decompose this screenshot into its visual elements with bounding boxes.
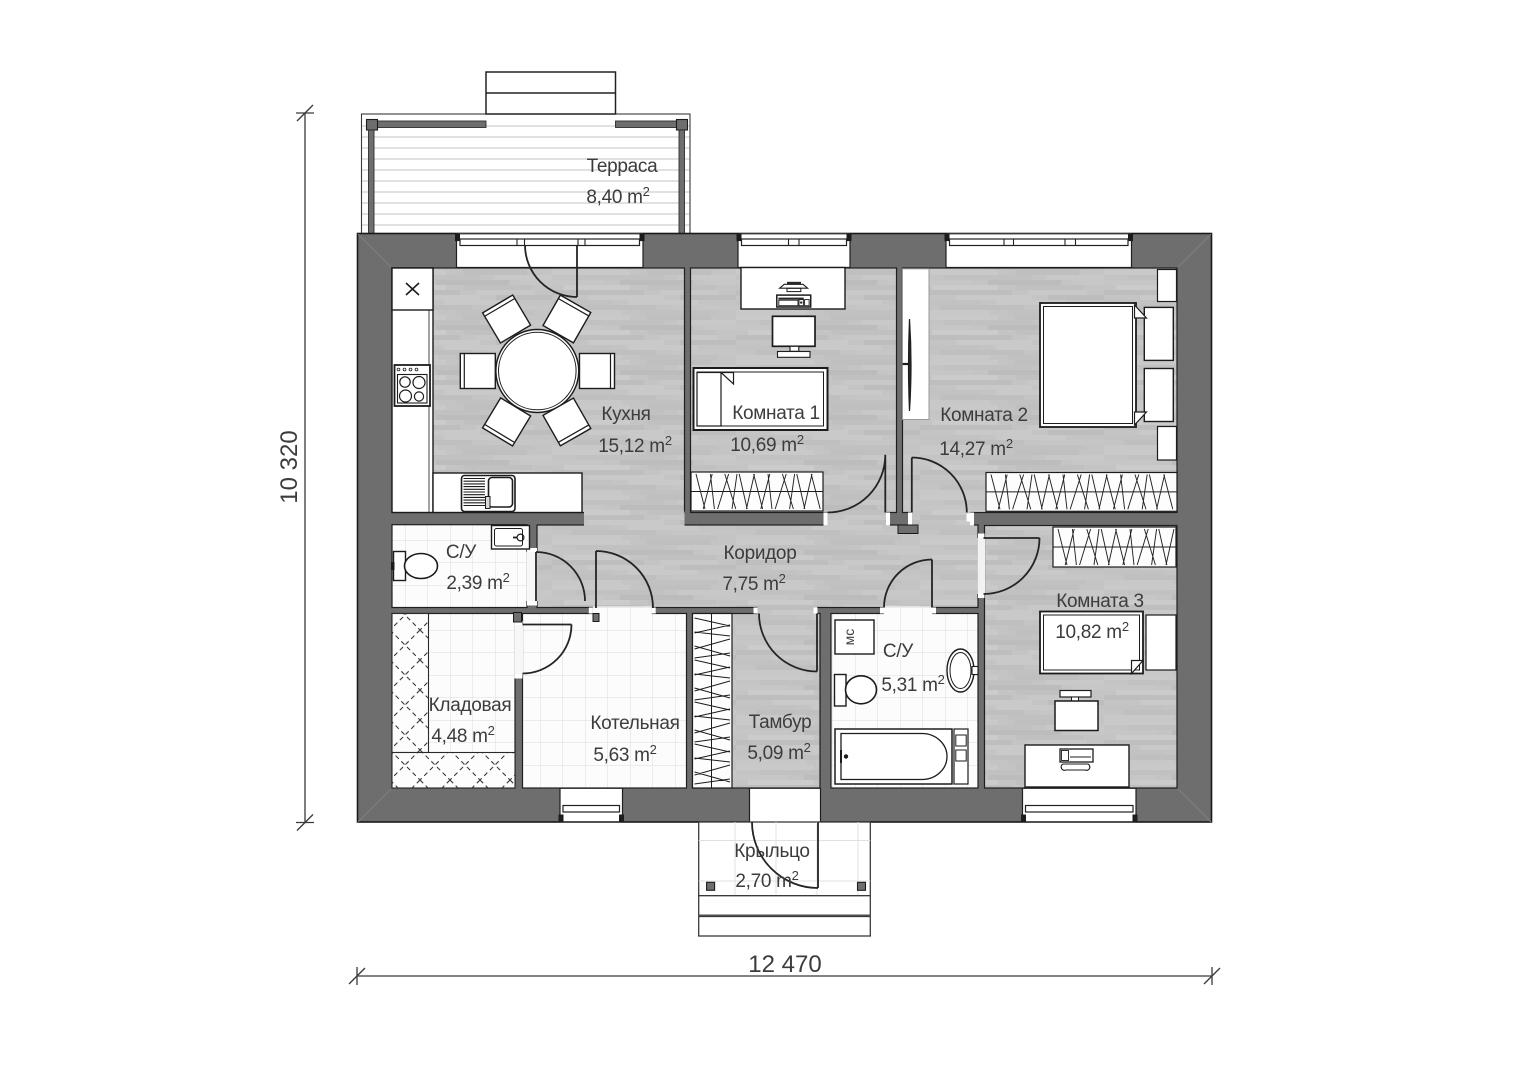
svg-text:Комната 1: Комната 1 bbox=[732, 403, 820, 424]
svg-text:Коридор: Коридор bbox=[724, 543, 797, 564]
svg-text:Тамбур: Тамбур bbox=[749, 712, 812, 733]
svg-text:2,39 m2: 2,39 m2 bbox=[446, 570, 509, 594]
svg-text:5,31 m2: 5,31 m2 bbox=[881, 672, 944, 696]
svg-text:14,27 m2: 14,27 m2 bbox=[939, 436, 1013, 460]
svg-text:Кухня: Кухня bbox=[601, 404, 650, 425]
svg-text:5,63 m2: 5,63 m2 bbox=[593, 742, 656, 766]
svg-text:Кладовая: Кладовая bbox=[429, 695, 512, 716]
svg-text:Комната 2: Комната 2 bbox=[940, 405, 1028, 426]
svg-text:5,09 m2: 5,09 m2 bbox=[747, 740, 810, 764]
svg-text:Терраса: Терраса bbox=[587, 156, 659, 177]
svg-text:10 320: 10 320 bbox=[276, 430, 303, 503]
svg-text:С/У: С/У bbox=[446, 542, 477, 563]
svg-text:Комната 3: Комната 3 bbox=[1056, 591, 1144, 612]
svg-text:Котельная: Котельная bbox=[590, 713, 679, 734]
svg-text:Крыльцо: Крыльцо bbox=[734, 841, 809, 862]
svg-text:10,82 m2: 10,82 m2 bbox=[1055, 619, 1129, 643]
svg-text:15,12 m2: 15,12 m2 bbox=[598, 433, 672, 457]
svg-text:2,70 m2: 2,70 m2 bbox=[735, 868, 798, 892]
svg-text:8,40 m2: 8,40 m2 bbox=[586, 184, 649, 208]
svg-text:С/У: С/У bbox=[883, 641, 914, 662]
svg-text:4,48 m2: 4,48 m2 bbox=[431, 723, 494, 747]
svg-text:7,75 m2: 7,75 m2 bbox=[722, 571, 785, 595]
svg-text:12 470: 12 470 bbox=[748, 951, 821, 978]
svg-text:мс: мс bbox=[841, 629, 857, 646]
svg-text:10,69 m2: 10,69 m2 bbox=[730, 432, 804, 456]
